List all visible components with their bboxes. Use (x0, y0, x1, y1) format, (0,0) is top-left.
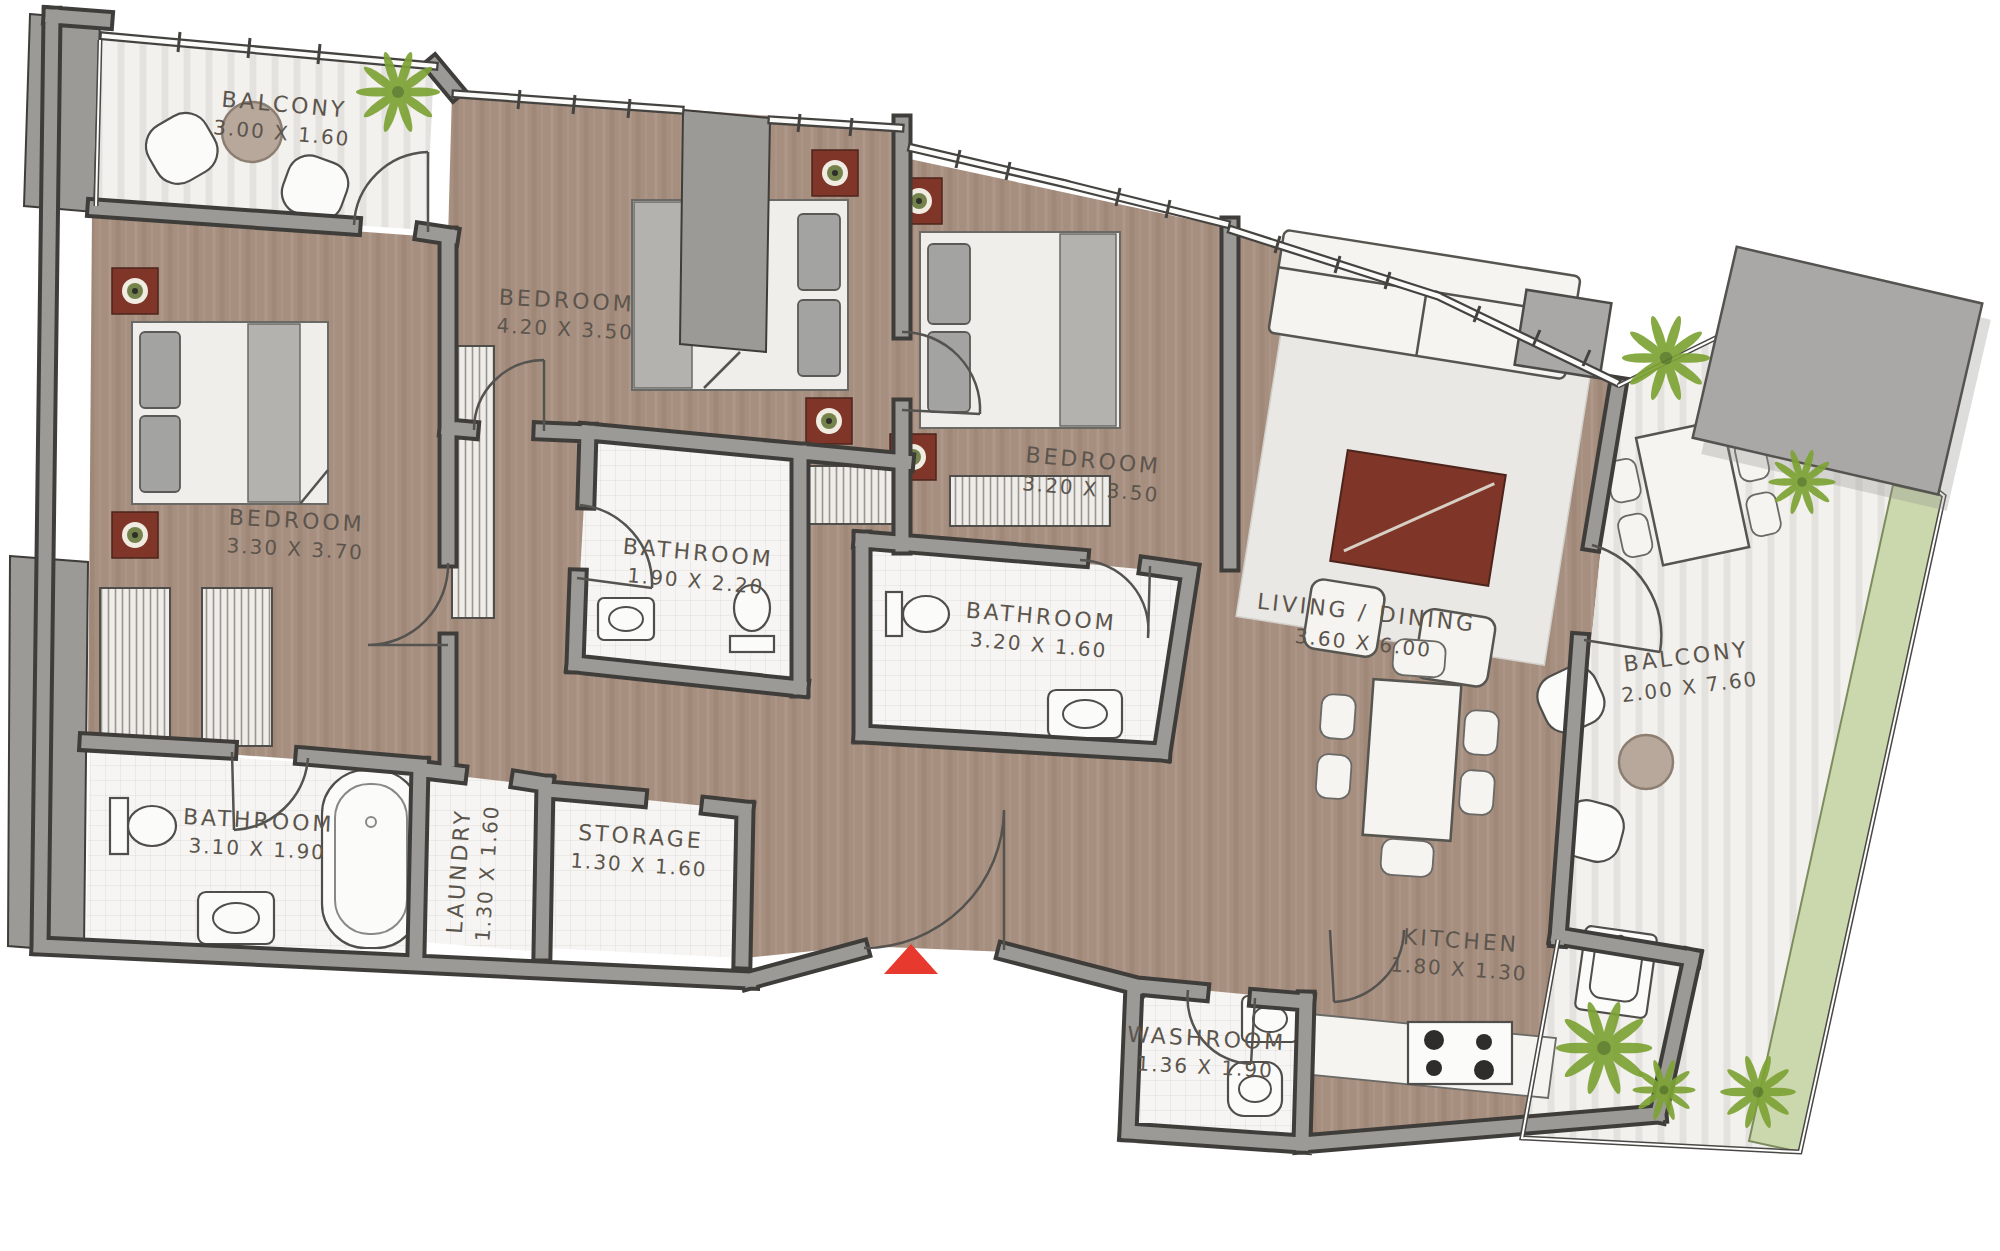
wardrobe (202, 588, 272, 746)
floor-areas (86, 40, 1944, 1152)
stove (1408, 1022, 1512, 1084)
floor-plan: BALCONY 3.00 X 1.60 BEDROOM 3.30 X 3.70 … (0, 0, 2000, 1251)
floor-plan-drawing: BALCONY 3.00 X 1.60 BEDROOM 3.30 X 3.70 … (0, 0, 2000, 1251)
dining-table (1363, 679, 1462, 841)
sink (1048, 690, 1122, 738)
bathtub (322, 770, 420, 948)
coffee-table (1330, 450, 1506, 586)
sink (598, 598, 654, 640)
tv-cabinet (1515, 290, 1612, 379)
toilet (886, 592, 949, 636)
wardrobe (100, 588, 170, 746)
wardrobe (806, 466, 898, 524)
sink (198, 892, 274, 944)
service-shaft (680, 110, 770, 352)
round-table (1619, 735, 1673, 789)
